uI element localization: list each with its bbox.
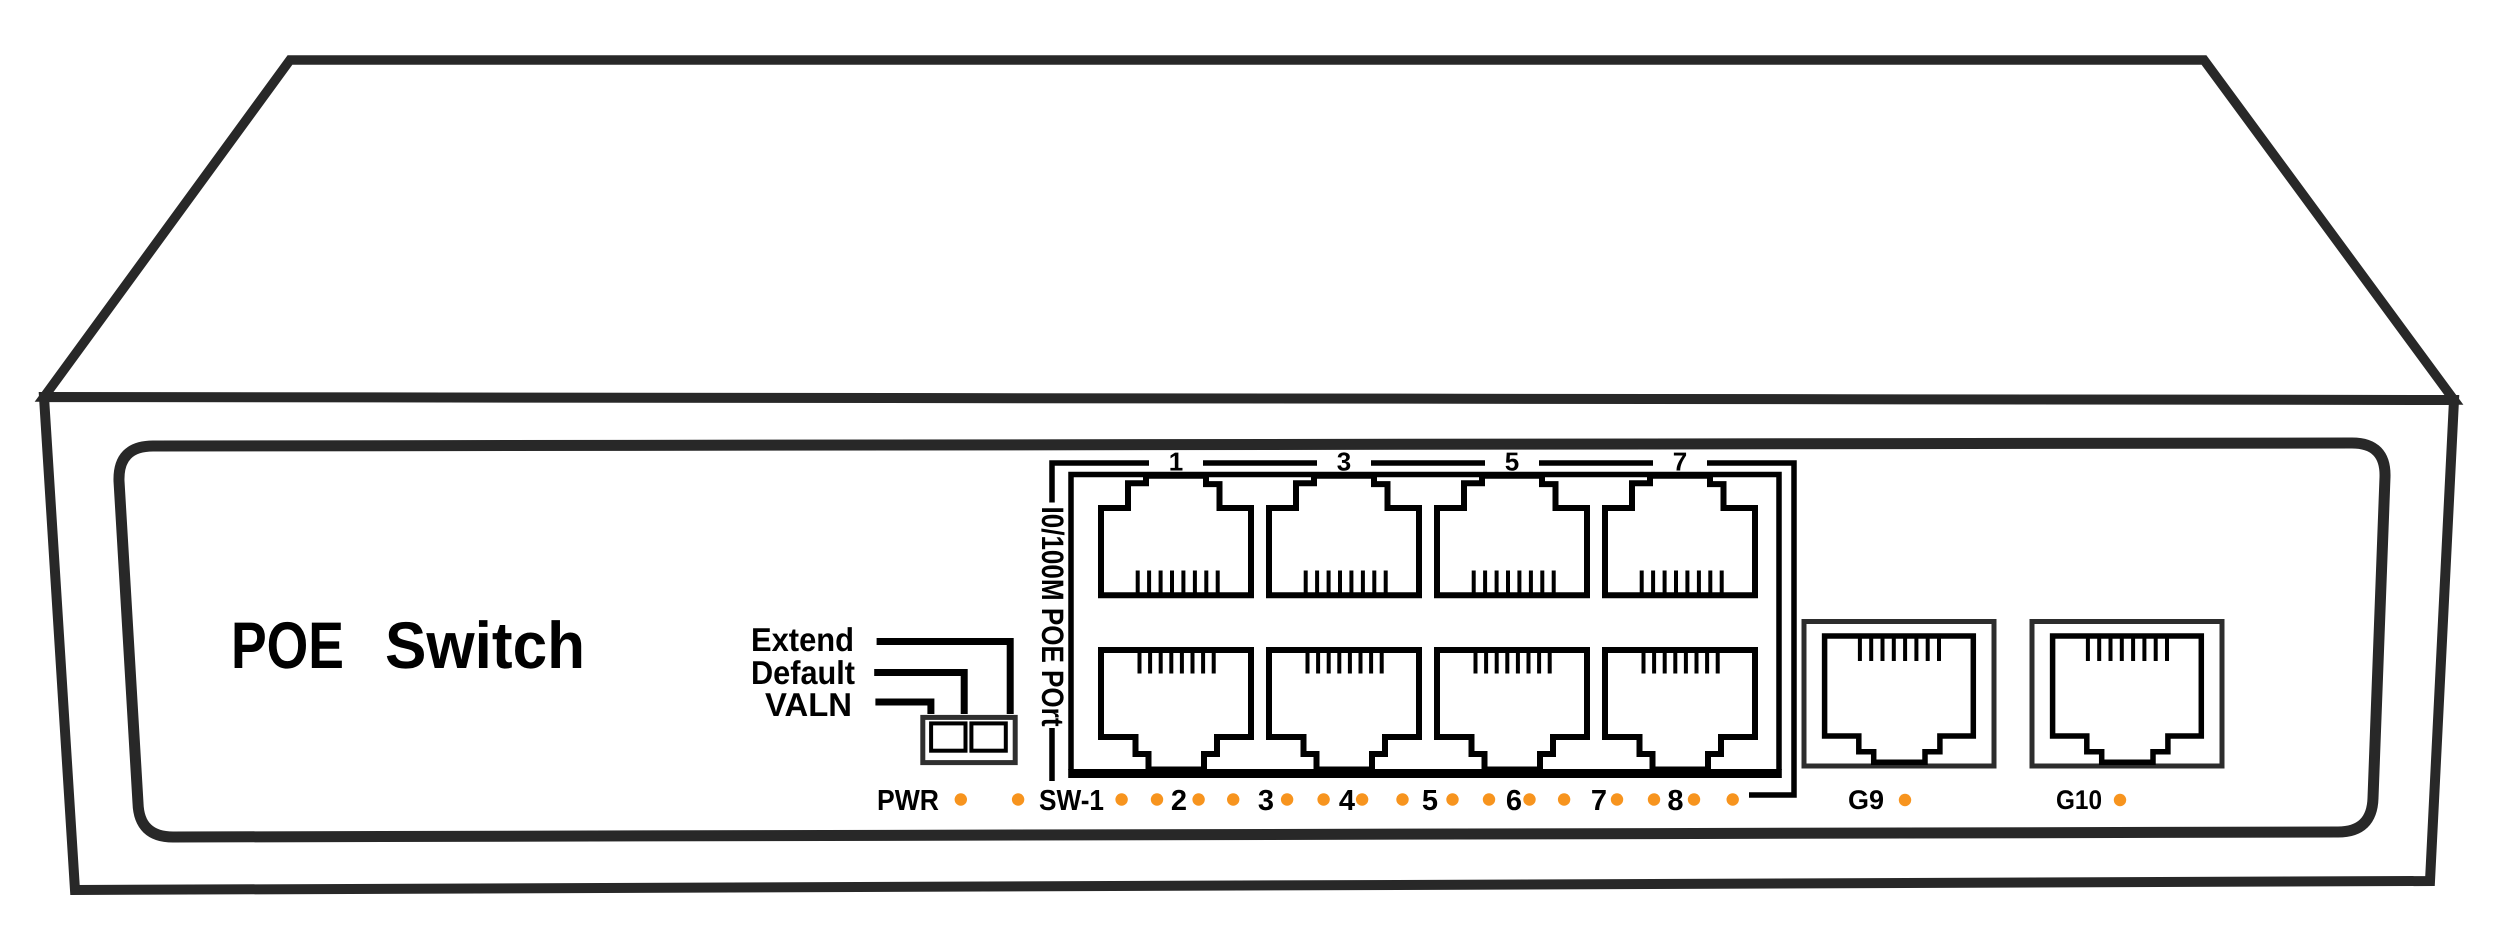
svg-text:G10: G10 <box>2056 785 2102 815</box>
svg-text:3: 3 <box>1337 447 1351 477</box>
svg-text:6: 6 <box>1506 785 1522 817</box>
svg-text:5: 5 <box>1505 447 1519 477</box>
svg-text:2: 2 <box>1171 785 1187 817</box>
svg-text:7: 7 <box>1591 785 1607 817</box>
svg-text:G9: G9 <box>1848 785 1884 815</box>
svg-text:PWR: PWR <box>877 785 939 817</box>
svg-text:Extend: Extend <box>751 621 854 658</box>
svg-text:7: 7 <box>1673 447 1687 477</box>
svg-text:3: 3 <box>1258 785 1274 817</box>
svg-text:1: 1 <box>1169 447 1183 477</box>
svg-text:POE: POE <box>231 608 344 682</box>
svg-text:5: 5 <box>1422 785 1438 817</box>
svg-text:VALN: VALN <box>765 686 852 723</box>
svg-text:I0/100M POE POrt: I0/100M POE POrt <box>1035 507 1070 727</box>
svg-text:4: 4 <box>1339 785 1355 817</box>
svg-text:Switch: Switch <box>385 608 585 682</box>
svg-text:8: 8 <box>1667 785 1683 817</box>
svg-text:SW-1: SW-1 <box>1039 785 1104 817</box>
